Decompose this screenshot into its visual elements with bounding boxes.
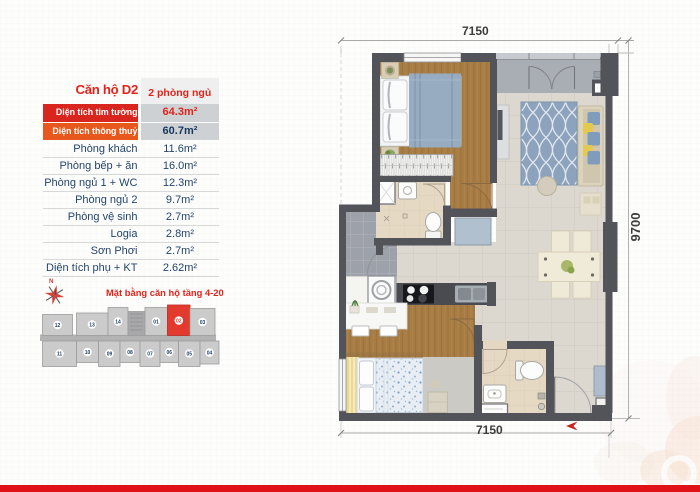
svg-text:08: 08 bbox=[127, 350, 133, 356]
svg-text:03: 03 bbox=[200, 320, 206, 326]
svg-text:09: 09 bbox=[107, 352, 113, 358]
svg-text:07: 07 bbox=[147, 352, 153, 358]
svg-text:05: 05 bbox=[187, 352, 193, 358]
svg-text:06: 06 bbox=[167, 350, 173, 356]
svg-text:10: 10 bbox=[85, 350, 91, 356]
svg-text:02: 02 bbox=[176, 319, 182, 325]
svg-text:N: N bbox=[49, 278, 54, 285]
svg-text:7150: 7150 bbox=[462, 24, 489, 38]
svg-text:01: 01 bbox=[153, 320, 159, 326]
svg-text:04: 04 bbox=[207, 351, 213, 357]
svg-text:11: 11 bbox=[57, 352, 63, 358]
svg-text:14: 14 bbox=[115, 320, 121, 326]
svg-text:13: 13 bbox=[89, 323, 95, 329]
svg-text:12: 12 bbox=[55, 323, 61, 329]
svg-text:9700: 9700 bbox=[628, 213, 643, 242]
svg-text:7150: 7150 bbox=[476, 423, 503, 437]
